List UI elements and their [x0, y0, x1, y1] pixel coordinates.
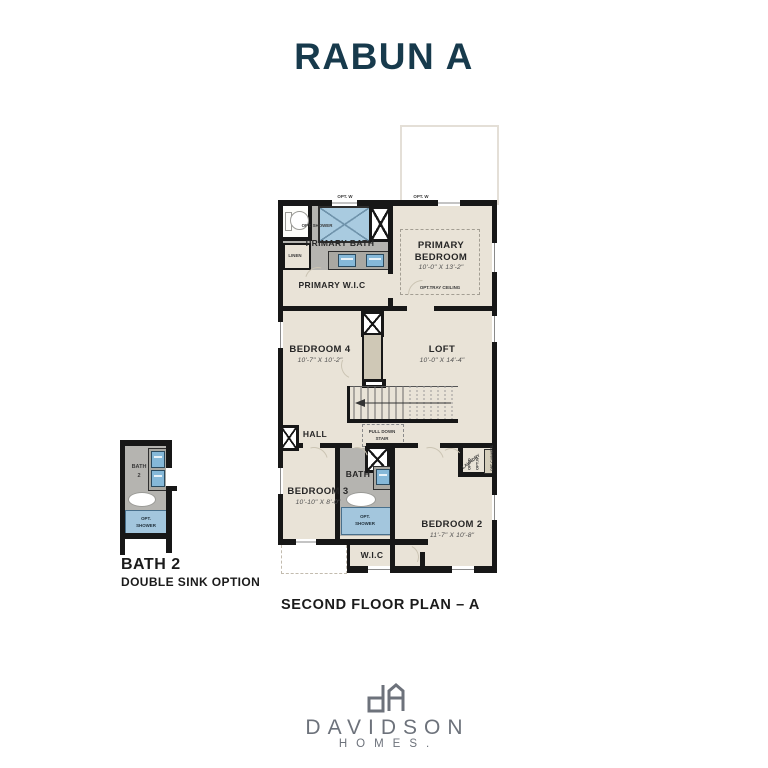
room-label-hall: HALL: [303, 429, 327, 439]
wall-segment: [434, 306, 497, 311]
sink-icon: [338, 254, 356, 267]
room-dims-loft: 10'-0" X 14'-4": [420, 357, 465, 364]
inset-room-label-1: BATH: [132, 463, 147, 469]
room-dims-bedroom2: 11'-7" X 10'-8": [430, 532, 474, 539]
plan-caption: SECOND FLOOR PLAN – A: [281, 597, 480, 613]
room-label-bedroom4: BEDROOM 4: [289, 344, 350, 355]
brand-subname: HOMES.: [0, 738, 768, 750]
door-jamb: [168, 486, 177, 491]
room-dims-bedroom3: 10'-10" X 8'-0": [296, 499, 341, 506]
toilet-icon: [128, 492, 156, 507]
sink-icon: [151, 470, 165, 487]
opt-shower-label-1: OPT.: [360, 514, 370, 519]
room-label-primary-bedroom: PRIMARY BEDROOM: [406, 240, 476, 263]
window: [492, 316, 497, 342]
sink-icon: [151, 451, 165, 468]
wall-exterior-top: [278, 200, 497, 206]
open-below-outline: [281, 545, 347, 574]
page-title: RABUN A: [0, 36, 768, 78]
opt-shower-label-2: SHOWER: [355, 521, 375, 526]
floor-plan-page: RABUN A: [0, 0, 768, 768]
wall-segment: [390, 448, 395, 568]
wall-segment: [278, 306, 407, 311]
window: [278, 468, 283, 494]
tray-ceiling-label: OPT.TRAY CEILING: [420, 285, 460, 290]
window: [452, 566, 474, 573]
wall-segment: [120, 533, 172, 539]
room-label-linen: LINEN: [288, 253, 301, 258]
opt-cabinets-label: OPT. CABINETS: [490, 445, 494, 471]
room-label-primary-wic: PRIMARY W.I.C: [298, 280, 365, 290]
inset-opt-shower-label-1: OPT.: [141, 516, 151, 521]
stairs: [347, 386, 458, 423]
room-label-wic: W.I.C: [361, 550, 384, 560]
opt-window-label: OPT. W: [413, 194, 428, 199]
wall-segment: [388, 206, 393, 274]
room-label-loft: LOFT: [429, 344, 455, 355]
opt-washer-label: OPT.W: [475, 457, 480, 470]
pull-down-stair-label-2: STAIR: [376, 436, 389, 441]
room-dims-bedroom4: 10'-7" X 10'-2": [298, 357, 343, 364]
window: [492, 495, 497, 520]
pull-down-stair-label-1: PULL DOWN: [369, 429, 396, 434]
inset-caption-subtitle: DOUBLE SINK OPTION: [121, 575, 260, 589]
inset-opt-shower-label-2: SHOWER: [136, 523, 156, 528]
inset-room-label-2: 2: [137, 472, 140, 478]
window: [368, 566, 390, 573]
window: [492, 243, 497, 272]
room-dims-primary-bedroom: 10'-0" X 13'-2": [419, 264, 464, 271]
room-label-bedroom3: BEDROOM 3: [287, 486, 348, 497]
room-label-bath: BATH: [346, 469, 371, 479]
door-gap: [166, 468, 172, 486]
inset-caption-title: BATH 2: [121, 556, 181, 574]
opt-window-label: OPT. W: [337, 194, 352, 199]
stair-rail-slot: [366, 382, 382, 385]
toilet-icon: [346, 492, 376, 507]
window: [278, 322, 283, 348]
dh-logo-icon: [356, 682, 412, 714]
opt-shower-small-label: OPT. SHOWER: [302, 223, 333, 228]
window: [438, 200, 460, 206]
window: [332, 200, 357, 206]
brand-name: DAVIDSON: [0, 716, 768, 740]
sink-icon: [376, 469, 390, 485]
room-label-bedroom2: BEDROOM 2: [421, 519, 482, 530]
sink-icon: [366, 254, 384, 267]
roof-outline: [400, 125, 499, 205]
opt-dryer-label: OPT.D: [467, 458, 472, 470]
room-label-primary-bath: PRIMARY BATH: [306, 238, 375, 248]
wall-segment: [120, 440, 172, 446]
